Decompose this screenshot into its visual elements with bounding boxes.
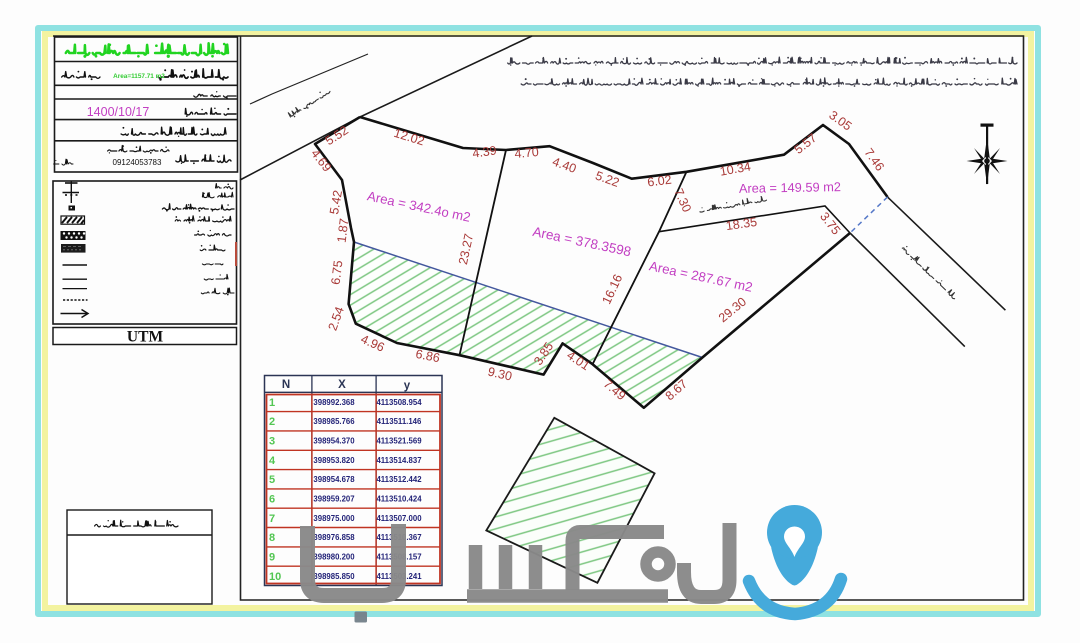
svg-text:Area = 378.3598: Area = 378.3598 — [531, 224, 632, 260]
svg-text:5.42: 5.42 — [327, 189, 345, 215]
svg-text:2.54: 2.54 — [326, 305, 347, 333]
svg-text:X: X — [338, 379, 346, 391]
svg-text:4113514.837: 4113514.837 — [376, 456, 421, 465]
svg-text:4113512.442: 4113512.442 — [376, 475, 422, 484]
svg-text:4113521.569: 4113521.569 — [376, 437, 422, 446]
svg-text:Area = 149.59 m2: Area = 149.59 m2 — [739, 179, 841, 196]
svg-text:3: 3 — [269, 436, 275, 448]
svg-text:398954.678: 398954.678 — [313, 475, 355, 484]
svg-text:1400/10/17: 1400/10/17 — [87, 105, 150, 119]
svg-text:4: 4 — [269, 455, 276, 467]
svg-text:398954.370: 398954.370 — [313, 437, 355, 446]
svg-text:398959.207: 398959.207 — [313, 495, 354, 504]
svg-text:5: 5 — [269, 474, 275, 486]
svg-text:398980.200: 398980.200 — [313, 553, 355, 562]
svg-text:UTM: UTM — [127, 329, 164, 346]
svg-text:398975.000: 398975.000 — [313, 514, 355, 523]
svg-text:398992.368: 398992.368 — [313, 398, 355, 407]
svg-text:18.35: 18.35 — [725, 215, 758, 233]
svg-text:5.57: 5.57 — [792, 131, 820, 157]
svg-text:09124053783: 09124053783 — [113, 158, 162, 167]
svg-text:398976.858: 398976.858 — [313, 533, 355, 542]
svg-text:5.52: 5.52 — [323, 123, 351, 148]
svg-text:Area=1157.71 m2: Area=1157.71 m2 — [113, 73, 165, 80]
svg-text:4.39: 4.39 — [471, 143, 497, 160]
svg-text:6.02: 6.02 — [647, 173, 673, 190]
svg-text:7.46: 7.46 — [861, 146, 887, 174]
svg-text:3.75: 3.75 — [817, 210, 843, 238]
svg-text:398985.850: 398985.850 — [313, 572, 355, 581]
svg-text:8: 8 — [269, 532, 275, 544]
svg-text:Area = 342.4o m2: Area = 342.4o m2 — [366, 188, 472, 225]
svg-text:4113510.424: 4113510.424 — [376, 495, 422, 504]
svg-text:y: y — [404, 380, 411, 392]
svg-text:1.87: 1.87 — [335, 218, 352, 244]
svg-text:1: 1 — [269, 397, 275, 409]
svg-text:10.34: 10.34 — [719, 159, 752, 178]
svg-text:398953.820: 398953.820 — [313, 456, 355, 465]
svg-text:Area = 287.67 m2: Area = 287.67 m2 — [648, 258, 754, 295]
svg-text:7: 7 — [269, 513, 275, 525]
svg-text:4113507.000: 4113507.000 — [376, 514, 422, 523]
svg-text:12.02: 12.02 — [392, 126, 426, 149]
svg-text:N: N — [282, 379, 290, 391]
svg-text:4.40: 4.40 — [551, 155, 579, 176]
svg-text:29.30: 29.30 — [716, 295, 749, 326]
svg-text:4113508.954: 4113508.954 — [376, 398, 422, 407]
svg-text:6.75: 6.75 — [329, 260, 346, 286]
svg-text:398985.766: 398985.766 — [313, 417, 355, 426]
svg-text:23.27: 23.27 — [456, 232, 476, 266]
svg-text:16.16: 16.16 — [599, 272, 625, 306]
svg-text:10: 10 — [269, 571, 281, 583]
svg-text:2: 2 — [269, 416, 275, 428]
svg-text:4.69: 4.69 — [308, 147, 334, 175]
svg-text:7.30: 7.30 — [671, 186, 694, 214]
svg-text:4.70: 4.70 — [514, 145, 540, 161]
svg-text:4113511.146: 4113511.146 — [377, 417, 422, 426]
svg-text:9: 9 — [269, 552, 275, 564]
svg-text:6: 6 — [269, 494, 275, 506]
